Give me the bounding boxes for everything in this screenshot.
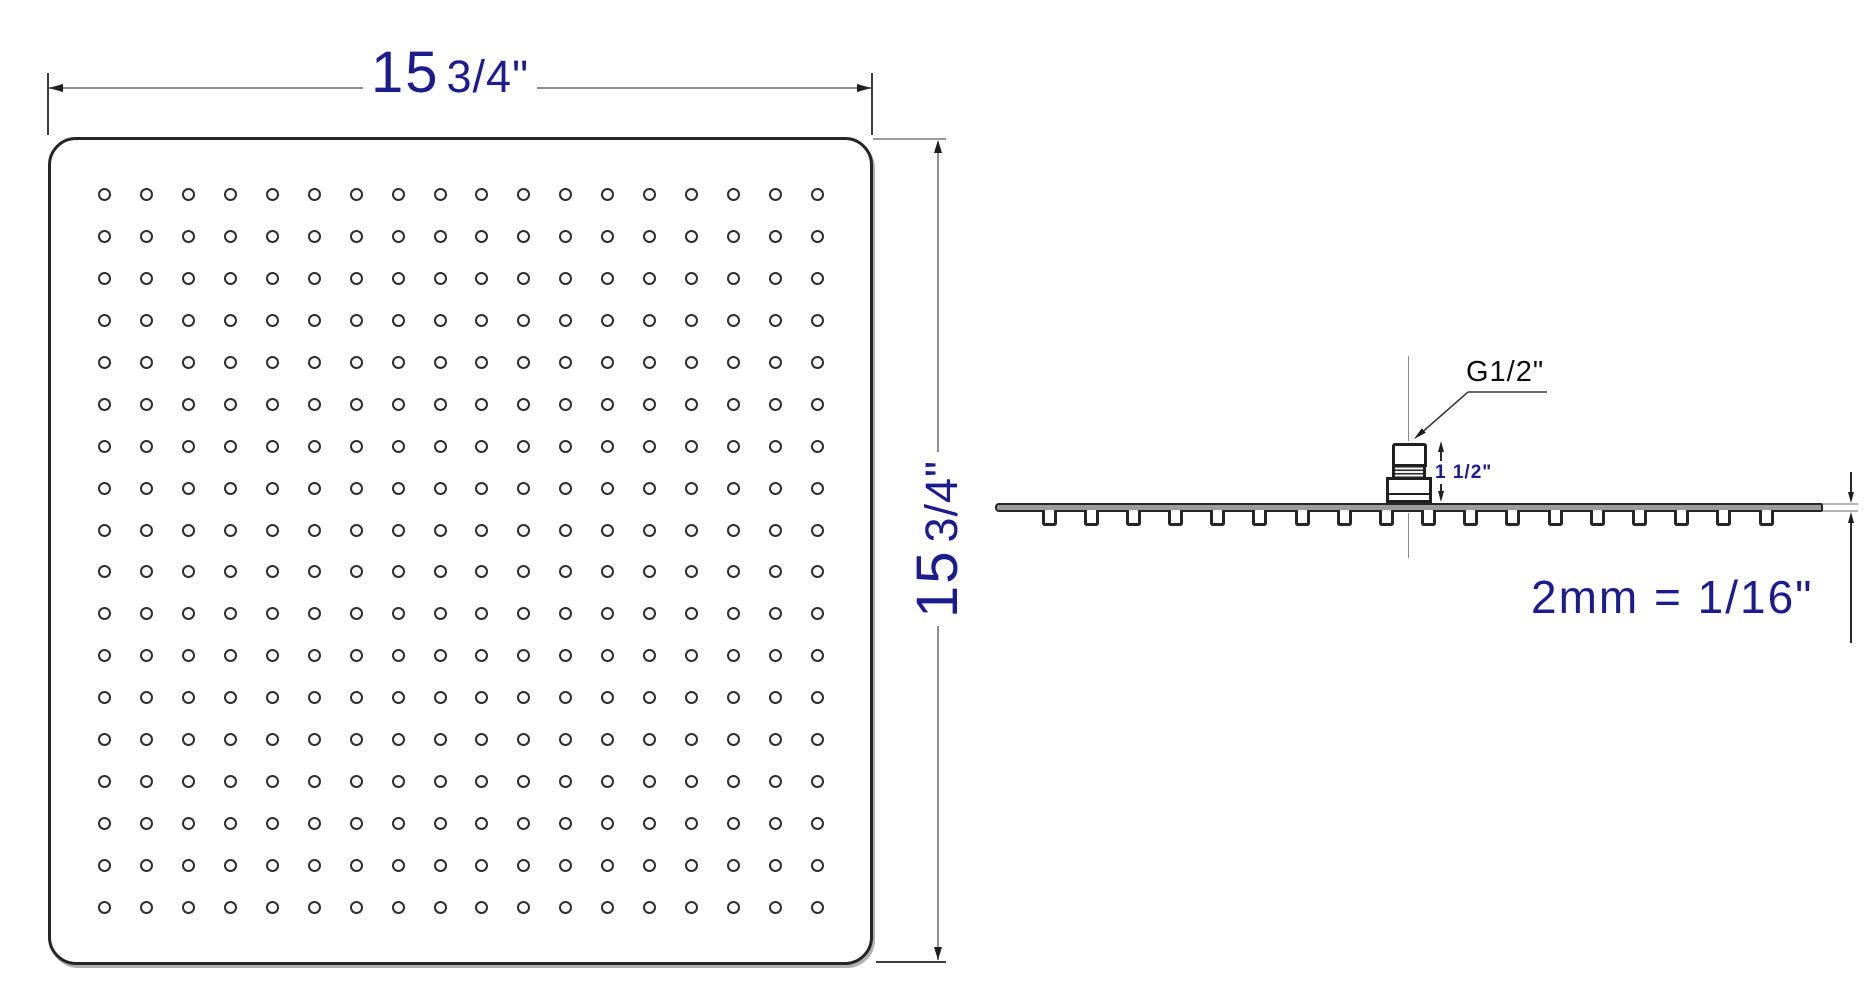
nozzle-grid	[51, 140, 870, 962]
nozzle-dot	[308, 272, 321, 285]
height-dim-arrowhead-bottom	[934, 947, 942, 960]
nozzle-dot	[517, 607, 530, 620]
nozzle-dot	[601, 188, 614, 201]
connector-centerline-bottom	[1408, 513, 1409, 558]
nozzle-dot	[182, 398, 195, 411]
nozzle-dot	[392, 733, 405, 746]
nozzle-dot	[98, 733, 111, 746]
nozzle-dot	[434, 733, 447, 746]
height-dimension-label: 15 3/4"	[909, 452, 967, 626]
nozzle-dot	[559, 565, 572, 578]
nozzle-dot	[475, 691, 488, 704]
nozzle-dot	[685, 524, 698, 537]
nozzle-dot	[182, 524, 195, 537]
nozzle-dot	[643, 272, 656, 285]
nozzle-dot	[308, 314, 321, 327]
nozzle-dot	[266, 775, 279, 788]
nozzle-dot	[266, 817, 279, 830]
nozzle-dot	[434, 691, 447, 704]
nozzle-dot	[517, 859, 530, 872]
connector-base	[1386, 477, 1432, 503]
nozzle-dot	[769, 524, 782, 537]
nozzle-dot	[643, 901, 656, 914]
nozzle-dot	[475, 356, 488, 369]
nozzle-dot	[517, 398, 530, 411]
nozzle-dot	[559, 859, 572, 872]
nozzle-dot	[140, 188, 153, 201]
nozzle-dot	[434, 482, 447, 495]
nozzle-dot	[769, 565, 782, 578]
nozzle-dot	[517, 356, 530, 369]
nozzle-dot	[643, 817, 656, 830]
profile-nozzle	[1590, 510, 1605, 526]
nozzle-dot	[224, 901, 237, 914]
nozzle-dot	[601, 524, 614, 537]
nozzle-dot	[98, 607, 111, 620]
nozzle-dot	[769, 649, 782, 662]
profile-nozzle	[1674, 510, 1689, 526]
nozzle-dot	[140, 482, 153, 495]
nozzle-dot	[475, 272, 488, 285]
nozzle-dot	[559, 314, 572, 327]
nozzle-dot	[266, 440, 279, 453]
showerhead-face-plate	[48, 137, 873, 965]
nozzle-dot	[811, 775, 824, 788]
nozzle-dot	[182, 272, 195, 285]
nozzle-dot	[517, 817, 530, 830]
nozzle-dot	[559, 649, 572, 662]
nozzle-dot	[811, 440, 824, 453]
nozzle-dot	[434, 356, 447, 369]
nozzle-dot	[350, 607, 363, 620]
profile-nozzle	[1759, 510, 1774, 526]
nozzle-dot	[392, 565, 405, 578]
nozzle-dot	[350, 230, 363, 243]
profile-nozzle	[1463, 510, 1478, 526]
nozzle-dot	[811, 733, 824, 746]
nozzle-dot	[811, 188, 824, 201]
nozzle-dot	[769, 859, 782, 872]
nozzle-dot	[350, 817, 363, 830]
nozzle-dot	[769, 272, 782, 285]
nozzle-dot	[308, 649, 321, 662]
nozzle-dot	[559, 356, 572, 369]
nozzle-dot	[308, 356, 321, 369]
height-extension-line-bottom	[876, 961, 946, 963]
nozzle-dot	[811, 356, 824, 369]
nozzle-dot	[392, 398, 405, 411]
nozzle-dot	[685, 565, 698, 578]
nozzle-dot	[224, 356, 237, 369]
nozzle-dot	[224, 440, 237, 453]
nozzle-dot	[308, 230, 321, 243]
nozzle-dot	[182, 859, 195, 872]
nozzle-dot	[517, 314, 530, 327]
nozzle-dot	[350, 775, 363, 788]
nozzle-dot	[769, 188, 782, 201]
nozzle-dot	[811, 524, 824, 537]
nozzle-dot	[517, 440, 530, 453]
nozzle-dot	[392, 188, 405, 201]
nozzle-dot	[350, 356, 363, 369]
nozzle-dot	[727, 649, 740, 662]
nozzle-dot	[643, 440, 656, 453]
nozzle-dot	[643, 188, 656, 201]
nozzle-dot	[601, 817, 614, 830]
nozzle-dot	[182, 314, 195, 327]
nozzle-dot	[811, 901, 824, 914]
nozzle-dot	[224, 565, 237, 578]
nozzle-dot	[98, 565, 111, 578]
nozzle-dot	[434, 775, 447, 788]
nozzle-dot	[182, 691, 195, 704]
nozzle-dot	[224, 775, 237, 788]
nozzle-dot	[140, 565, 153, 578]
nozzle-dot	[727, 859, 740, 872]
nozzle-dot	[559, 817, 572, 830]
nozzle-dot	[475, 901, 488, 914]
nozzle-dot	[140, 356, 153, 369]
nozzle-dot	[392, 775, 405, 788]
nozzle-dot	[727, 733, 740, 746]
nozzle-dot	[727, 817, 740, 830]
nozzle-dot	[559, 524, 572, 537]
height-dim-arrowhead-top	[934, 140, 942, 153]
nozzle-dot	[475, 524, 488, 537]
nozzle-dot	[350, 398, 363, 411]
nozzle-dot	[350, 314, 363, 327]
connector-height-arrowhead-bottom	[1438, 491, 1444, 502]
nozzle-dot	[559, 775, 572, 788]
nozzle-dot	[769, 440, 782, 453]
nozzle-dot	[601, 272, 614, 285]
nozzle-dot	[434, 314, 447, 327]
nozzle-dot	[392, 314, 405, 327]
nozzle-dot	[643, 733, 656, 746]
nozzle-dot	[140, 649, 153, 662]
nozzle-dot	[392, 817, 405, 830]
nozzle-dot	[475, 440, 488, 453]
nozzle-dot	[182, 188, 195, 201]
nozzle-dot	[224, 859, 237, 872]
connector-thread	[1392, 466, 1426, 477]
nozzle-dot	[266, 733, 279, 746]
nozzle-dot	[182, 607, 195, 620]
nozzle-dot	[140, 440, 153, 453]
nozzle-dot	[224, 482, 237, 495]
nozzle-dot	[434, 901, 447, 914]
profile-nozzle	[1168, 510, 1183, 526]
nozzle-dot	[769, 482, 782, 495]
nozzle-dot	[392, 440, 405, 453]
nozzle-dot	[98, 859, 111, 872]
nozzle-dot	[308, 524, 321, 537]
nozzle-dot	[98, 817, 111, 830]
nozzle-dot	[727, 775, 740, 788]
nozzle-dot	[350, 901, 363, 914]
nozzle-dot	[685, 649, 698, 662]
nozzle-dot	[475, 314, 488, 327]
nozzle-dot	[475, 775, 488, 788]
nozzle-dot	[811, 230, 824, 243]
nozzle-dot	[182, 565, 195, 578]
nozzle-dot	[727, 314, 740, 327]
nozzle-dot	[811, 649, 824, 662]
nozzle-dot	[517, 565, 530, 578]
nozzle-dot	[769, 314, 782, 327]
nozzle-dot	[140, 733, 153, 746]
nozzle-dot	[811, 817, 824, 830]
nozzle-dot	[517, 524, 530, 537]
width-dimension-label: 15 3/4"	[363, 44, 537, 102]
nozzle-dot	[350, 524, 363, 537]
nozzle-dot	[517, 482, 530, 495]
nozzle-dot	[182, 733, 195, 746]
nozzle-dot	[266, 314, 279, 327]
nozzle-dot	[98, 901, 111, 914]
nozzle-dot	[140, 691, 153, 704]
nozzle-dot	[769, 817, 782, 830]
nozzle-dot	[517, 188, 530, 201]
nozzle-dot	[434, 188, 447, 201]
nozzle-dot	[517, 272, 530, 285]
nozzle-dot	[685, 230, 698, 243]
nozzle-dot	[811, 398, 824, 411]
nozzle-dot	[811, 565, 824, 578]
nozzle-dot	[434, 859, 447, 872]
nozzle-dot	[140, 607, 153, 620]
nozzle-dot	[266, 859, 279, 872]
nozzle-dot	[769, 775, 782, 788]
profile-nozzle	[1252, 510, 1267, 526]
nozzle-dot	[98, 272, 111, 285]
nozzle-dot	[685, 607, 698, 620]
nozzle-dot	[643, 649, 656, 662]
profile-nozzle	[1042, 510, 1057, 526]
nozzle-dot	[98, 314, 111, 327]
nozzle-dot	[182, 230, 195, 243]
nozzle-dot	[643, 691, 656, 704]
nozzle-dot	[475, 607, 488, 620]
width-extension-line-right	[871, 73, 873, 135]
nozzle-dot	[308, 398, 321, 411]
nozzle-dot	[559, 733, 572, 746]
nozzle-dot	[475, 565, 488, 578]
nozzle-dot	[266, 188, 279, 201]
profile-nozzle	[1716, 510, 1731, 526]
nozzle-dot	[98, 775, 111, 788]
nozzle-dot	[140, 314, 153, 327]
nozzle-dot	[308, 901, 321, 914]
profile-nozzle	[1337, 510, 1352, 526]
nozzle-dot	[559, 691, 572, 704]
nozzle-dot	[727, 607, 740, 620]
nozzle-dot	[475, 649, 488, 662]
nozzle-dot	[601, 398, 614, 411]
profile-plate	[995, 503, 1823, 512]
nozzle-dot	[140, 775, 153, 788]
nozzle-dot	[308, 775, 321, 788]
nozzle-dot	[727, 188, 740, 201]
nozzle-dot	[350, 691, 363, 704]
nozzle-dot	[350, 482, 363, 495]
nozzle-dot	[350, 859, 363, 872]
nozzle-dot	[559, 230, 572, 243]
nozzle-dot	[601, 649, 614, 662]
nozzle-dot	[434, 524, 447, 537]
nozzle-dot	[182, 901, 195, 914]
nozzle-dot	[308, 733, 321, 746]
thickness-arrowhead-up	[1848, 512, 1854, 523]
nozzle-dot	[266, 482, 279, 495]
nozzle-dot	[727, 398, 740, 411]
nozzle-dot	[182, 356, 195, 369]
nozzle-dot	[224, 691, 237, 704]
nozzle-dot	[224, 733, 237, 746]
nozzle-dot	[517, 775, 530, 788]
width-dim-arrowhead-right	[857, 84, 871, 92]
nozzle-dot	[643, 775, 656, 788]
nozzle-dot	[475, 733, 488, 746]
nozzle-dot	[811, 272, 824, 285]
nozzle-dot	[224, 649, 237, 662]
connector-base-line	[1387, 493, 1431, 495]
nozzle-dot	[601, 482, 614, 495]
nozzle-dot	[308, 607, 321, 620]
width-extension-line-left	[47, 73, 49, 135]
profile-nozzle	[1548, 510, 1563, 526]
nozzle-dot	[685, 775, 698, 788]
nozzle-dot	[266, 230, 279, 243]
nozzle-dot	[601, 356, 614, 369]
nozzle-dot	[266, 607, 279, 620]
thickness-dim-line-upper	[1850, 472, 1852, 492]
nozzle-dot	[601, 775, 614, 788]
nozzle-dot	[601, 859, 614, 872]
nozzle-dot	[350, 440, 363, 453]
nozzle-dot	[392, 691, 405, 704]
nozzle-dot	[224, 524, 237, 537]
nozzle-dot	[643, 565, 656, 578]
nozzle-dot	[685, 482, 698, 495]
nozzle-dot	[140, 272, 153, 285]
nozzle-dot	[601, 230, 614, 243]
nozzle-dot	[224, 188, 237, 201]
nozzle-dot	[475, 398, 488, 411]
nozzle-dot	[224, 230, 237, 243]
profile-nozzle	[1126, 510, 1141, 526]
nozzle-dot	[308, 440, 321, 453]
nozzle-dot	[685, 314, 698, 327]
height-dimension-whole: 15	[909, 550, 967, 619]
nozzle-dot	[308, 482, 321, 495]
nozzle-dot	[266, 691, 279, 704]
nozzle-dot	[685, 440, 698, 453]
nozzle-dot	[727, 440, 740, 453]
nozzle-dot	[643, 314, 656, 327]
nozzle-dot	[266, 901, 279, 914]
nozzle-dot	[266, 565, 279, 578]
nozzle-dot	[224, 314, 237, 327]
nozzle-dot	[98, 188, 111, 201]
nozzle-dot	[685, 901, 698, 914]
nozzle-dot	[811, 859, 824, 872]
nozzle-dot	[559, 901, 572, 914]
nozzle-dot	[350, 565, 363, 578]
nozzle-dot	[727, 230, 740, 243]
nozzle-dot	[727, 901, 740, 914]
nozzle-dot	[769, 398, 782, 411]
nozzle-dot	[601, 565, 614, 578]
nozzle-dot	[308, 565, 321, 578]
nozzle-dot	[601, 691, 614, 704]
nozzle-dot	[182, 649, 195, 662]
nozzle-dot	[559, 272, 572, 285]
nozzle-dot	[308, 817, 321, 830]
profile-nozzle	[1379, 510, 1394, 526]
nozzle-dot	[392, 524, 405, 537]
nozzle-dot	[727, 691, 740, 704]
nozzle-dot	[350, 733, 363, 746]
nozzle-dot	[727, 565, 740, 578]
nozzle-dot	[266, 398, 279, 411]
nozzle-dot	[685, 733, 698, 746]
nozzle-dot	[308, 691, 321, 704]
nozzle-dot	[685, 817, 698, 830]
nozzle-dot	[727, 272, 740, 285]
nozzle-dot	[224, 607, 237, 620]
nozzle-dot	[266, 524, 279, 537]
nozzle-dot	[811, 607, 824, 620]
nozzle-dot	[769, 230, 782, 243]
nozzle-dot	[475, 188, 488, 201]
nozzle-dot	[811, 482, 824, 495]
nozzle-dot	[727, 356, 740, 369]
profile-nozzle	[1084, 510, 1099, 526]
profile-nozzle	[1505, 510, 1520, 526]
profile-nozzle	[1421, 510, 1436, 526]
nozzle-dot	[685, 272, 698, 285]
width-dimension-fraction: 3/4"	[447, 54, 530, 99]
nozzle-dot	[475, 482, 488, 495]
technical-drawing-canvas: 15 3/4" 15 3/4" G1/2" 1 1/2" 2mm = 1/16"	[0, 0, 1876, 1000]
nozzle-dot	[475, 230, 488, 243]
nozzle-dot	[685, 691, 698, 704]
nozzle-dot	[98, 440, 111, 453]
nozzle-dot	[266, 356, 279, 369]
width-dim-arrowhead-left	[49, 84, 63, 92]
nozzle-dot	[475, 817, 488, 830]
nozzle-dot	[224, 398, 237, 411]
nozzle-dot	[98, 691, 111, 704]
nozzle-dot	[98, 649, 111, 662]
thickness-dim-line-lower	[1850, 523, 1852, 643]
profile-nozzle	[1632, 510, 1647, 526]
nozzle-dot	[392, 607, 405, 620]
nozzle-dot	[517, 901, 530, 914]
nozzle-dot	[559, 440, 572, 453]
nozzle-dot	[643, 524, 656, 537]
height-dimension-fraction: 3/4"	[919, 460, 964, 543]
connector-height-label: 1 1/2"	[1433, 462, 1494, 484]
nozzle-dot	[308, 188, 321, 201]
nozzle-dot	[434, 649, 447, 662]
nozzle-dot	[643, 398, 656, 411]
nozzle-dot	[685, 398, 698, 411]
nozzle-dot	[434, 230, 447, 243]
nozzle-dot	[601, 901, 614, 914]
nozzle-dot	[350, 188, 363, 201]
